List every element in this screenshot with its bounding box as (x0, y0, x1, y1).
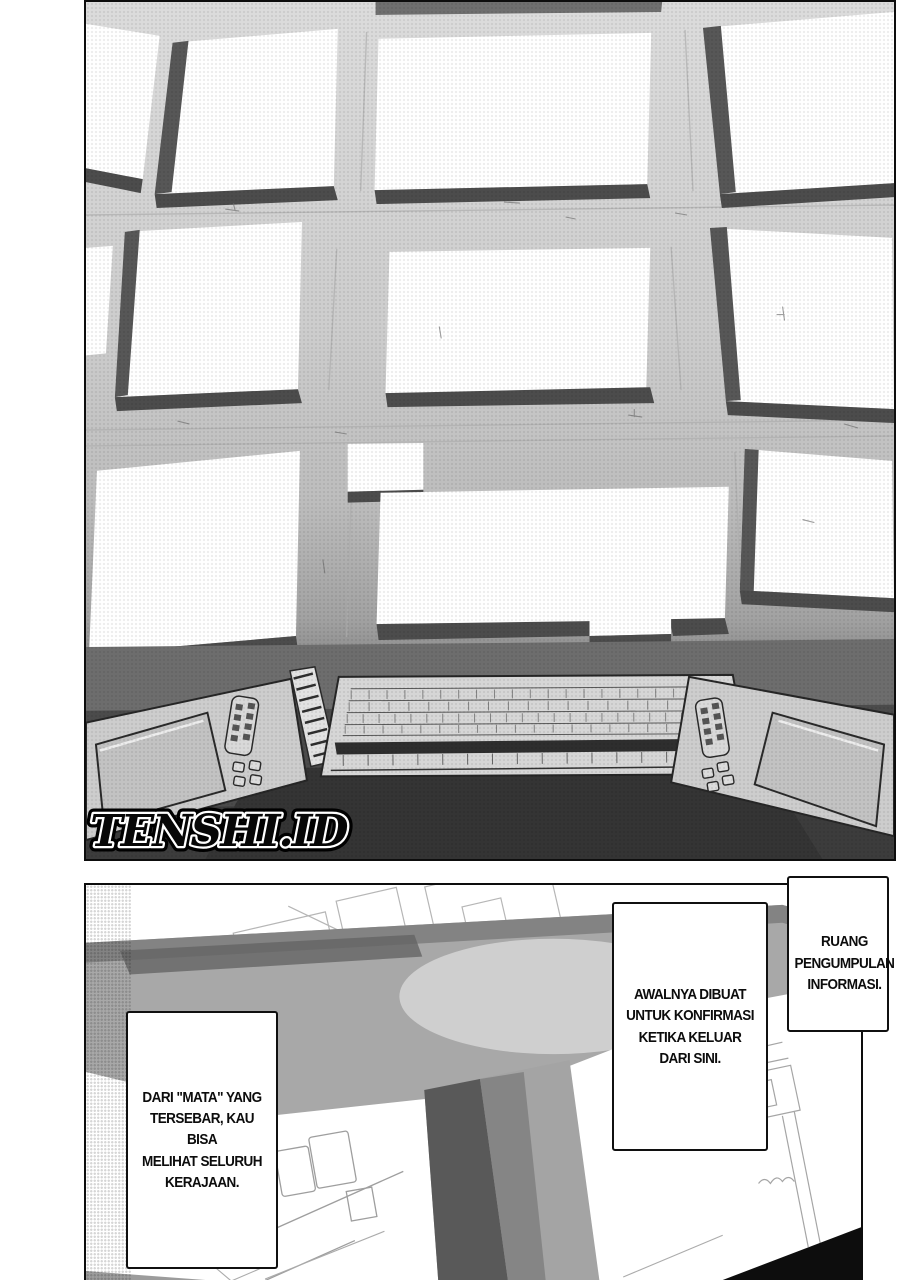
floor-dark-corner (723, 1227, 861, 1280)
wall-screen (377, 487, 729, 624)
screen-shadow (377, 621, 592, 640)
floor-dark-corner-left (86, 1271, 205, 1280)
wall-screen (89, 451, 300, 654)
caption-box-purpose: AWALNYA DIBUAT UNTUK KONFIRMASI KETIKA K… (612, 902, 768, 1151)
wall-screen (86, 246, 113, 355)
manga-page: TENSHI.ID TENSHI.ID (0, 0, 900, 1280)
wall-screen (115, 222, 302, 397)
caption-text: AWALNYA DIBUAT UNTUK KONFIRMASI KETIKA K… (626, 984, 754, 1069)
wall-screen (375, 33, 652, 190)
wall-screen-small (590, 571, 672, 636)
caption-box-info-room: RUANG PENGUMPULAN INFORMASI. (787, 876, 889, 1032)
wall-screen-small (348, 443, 424, 492)
panel-screen-wall (84, 0, 896, 861)
wall-screen (386, 248, 651, 393)
screen-shadow (669, 618, 729, 636)
wall-screen (740, 449, 894, 598)
cutoff-screen-shadow (376, 2, 663, 15)
caption-text: RUANG PENGUMPULAN INFORMASI. (795, 931, 895, 995)
screen-wall-illustration (86, 2, 894, 859)
watermark-text: TENSHI.ID (90, 806, 348, 857)
caption-text: DARI "MATA" YANG TERSEBAR, KAU BISA MELI… (137, 1087, 267, 1193)
wall-screen (86, 24, 160, 179)
watermark: TENSHI.ID TENSHI.ID (86, 799, 376, 863)
caption-box-eyes: DARI "MATA" YANG TERSEBAR, KAU BISA MELI… (126, 1011, 278, 1269)
